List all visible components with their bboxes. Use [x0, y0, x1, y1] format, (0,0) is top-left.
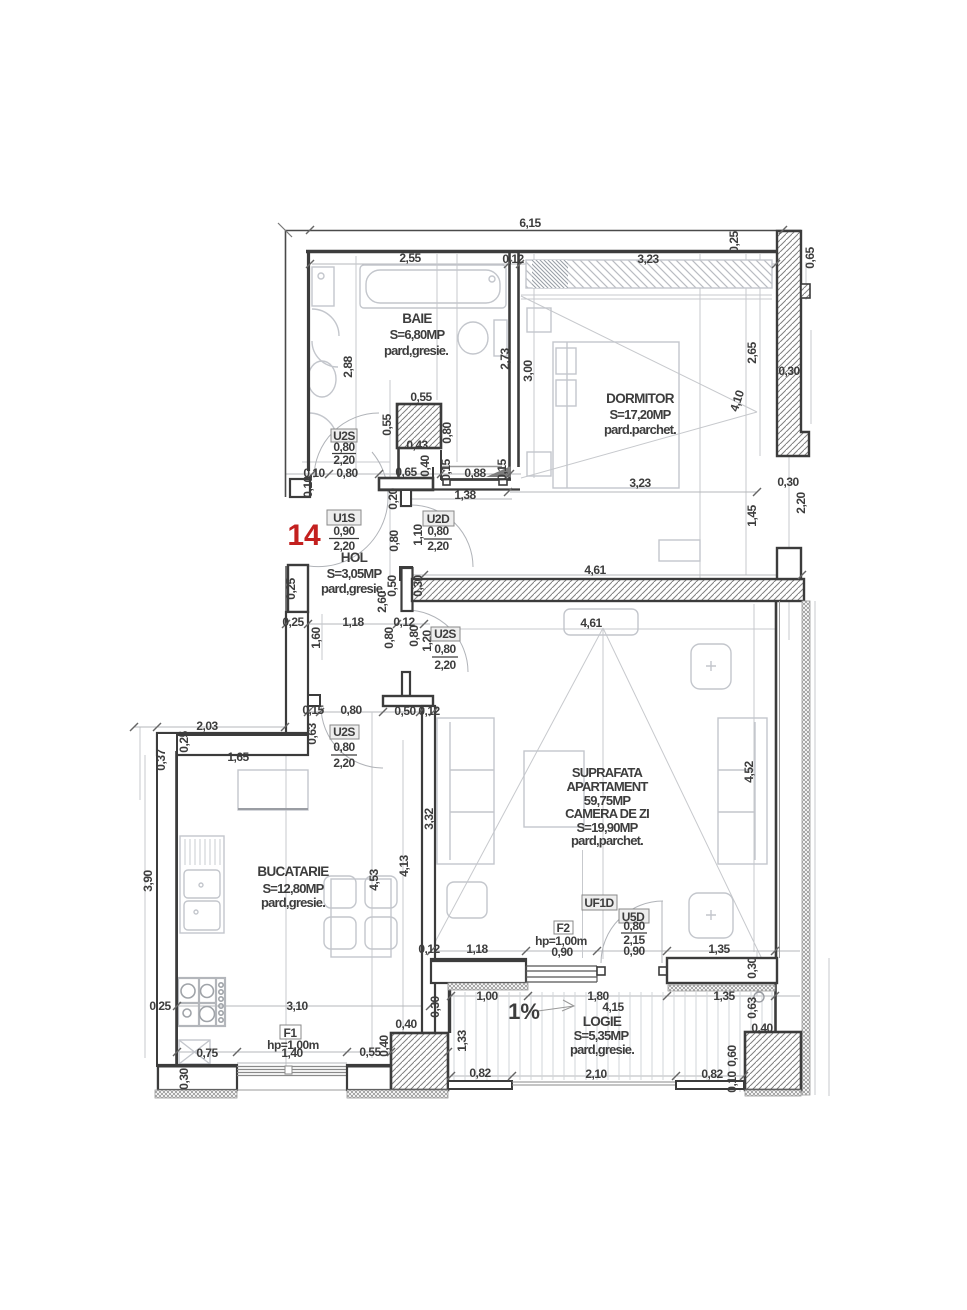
svg-text:0,40: 0,40 — [751, 1021, 773, 1035]
svg-text:0,40: 0,40 — [418, 454, 432, 476]
svg-text:S=3,05MP: S=3,05MP — [327, 566, 383, 581]
svg-text:0,25: 0,25 — [727, 230, 741, 252]
svg-text:0,63: 0,63 — [745, 996, 759, 1018]
svg-text:1,18: 1,18 — [466, 942, 488, 956]
svg-text:APARTAMENT: APARTAMENT — [566, 779, 648, 794]
svg-text:0,40: 0,40 — [377, 1034, 391, 1056]
svg-text:2,10: 2,10 — [585, 1067, 607, 1081]
svg-text:pard,parchet.: pard,parchet. — [571, 833, 643, 848]
svg-text:3,23: 3,23 — [637, 252, 659, 266]
svg-text:0,30: 0,30 — [778, 364, 800, 378]
svg-text:1,35: 1,35 — [708, 942, 730, 956]
svg-text:4,15: 4,15 — [602, 1000, 624, 1014]
svg-text:0,80: 0,80 — [333, 440, 355, 454]
svg-text:0,12: 0,12 — [502, 252, 524, 266]
svg-text:pard.parchet.: pard.parchet. — [604, 422, 676, 437]
svg-text:2,65: 2,65 — [745, 341, 759, 363]
svg-text:2,88: 2,88 — [341, 355, 355, 377]
svg-text:1,45: 1,45 — [745, 504, 759, 526]
svg-text:2,60: 2,60 — [375, 590, 389, 612]
svg-text:0,15: 0,15 — [302, 703, 324, 717]
svg-text:1,10: 1,10 — [411, 523, 425, 545]
svg-text:2,20: 2,20 — [333, 453, 355, 467]
svg-text:U2S: U2S — [333, 725, 355, 739]
svg-text:0,80: 0,80 — [340, 703, 362, 717]
svg-text:0,50: 0,50 — [394, 704, 416, 718]
svg-text:4,52: 4,52 — [742, 760, 756, 782]
svg-text:0,90: 0,90 — [623, 944, 645, 958]
svg-text:2,20: 2,20 — [434, 658, 456, 672]
svg-text:4,10: 4,10 — [727, 388, 747, 413]
svg-text:1,33: 1,33 — [455, 1029, 469, 1051]
svg-text:1,18: 1,18 — [342, 615, 364, 629]
svg-text:pard,gresie.: pard,gresie. — [570, 1042, 634, 1057]
svg-text:4,61: 4,61 — [580, 616, 602, 630]
svg-text:0,15: 0,15 — [495, 458, 509, 480]
svg-text:UF1D: UF1D — [584, 896, 614, 910]
svg-text:0,88: 0,88 — [464, 466, 486, 480]
svg-text:0,80: 0,80 — [387, 529, 401, 551]
svg-text:2,55: 2,55 — [399, 251, 421, 265]
svg-text:3,00: 3,00 — [521, 359, 535, 381]
svg-text:pard,gresie.: pard,gresie. — [384, 343, 448, 358]
svg-text:0,10: 0,10 — [301, 475, 315, 497]
svg-text:2,20: 2,20 — [794, 491, 808, 513]
svg-text:0,65: 0,65 — [803, 246, 817, 268]
svg-text:0,30: 0,30 — [411, 574, 425, 596]
svg-text:0,80: 0,80 — [407, 624, 421, 646]
svg-text:0,82: 0,82 — [469, 1066, 491, 1080]
svg-text:U1S: U1S — [333, 511, 355, 525]
svg-text:2,03: 2,03 — [196, 719, 218, 733]
svg-text:6,15: 6,15 — [519, 216, 541, 230]
svg-text:0,12: 0,12 — [418, 704, 440, 718]
svg-text:S=12,80MP: S=12,80MP — [262, 881, 324, 896]
svg-text:0,30: 0,30 — [428, 995, 442, 1017]
svg-text:0,25: 0,25 — [284, 577, 298, 599]
svg-text:0,80: 0,80 — [623, 919, 645, 933]
svg-text:U2S: U2S — [434, 627, 456, 641]
svg-text:0,25: 0,25 — [282, 615, 304, 629]
svg-text:1,60: 1,60 — [309, 626, 323, 648]
svg-text:BAIE: BAIE — [402, 311, 432, 326]
svg-text:F2: F2 — [556, 921, 570, 935]
svg-text:LOGIE: LOGIE — [583, 1014, 622, 1029]
svg-text:0,80: 0,80 — [440, 421, 454, 443]
svg-text:0,63: 0,63 — [305, 722, 319, 744]
svg-text:4,53: 4,53 — [367, 868, 381, 890]
svg-text:0,43: 0,43 — [406, 438, 428, 452]
svg-text:1%: 1% — [508, 999, 540, 1024]
svg-text:1,40: 1,40 — [281, 1046, 303, 1060]
svg-text:4,13: 4,13 — [397, 854, 411, 876]
svg-text:CAMERA DE ZI: CAMERA DE ZI — [565, 806, 649, 821]
svg-text:0,37: 0,37 — [154, 748, 168, 770]
svg-text:0,25: 0,25 — [177, 730, 191, 752]
svg-text:0,10: 0,10 — [725, 1070, 739, 1092]
svg-text:0,40: 0,40 — [395, 1017, 417, 1031]
svg-text:S=17,20MP: S=17,20MP — [609, 407, 671, 422]
svg-text:0,75: 0,75 — [196, 1046, 218, 1060]
svg-text:SUPRAFATA: SUPRAFATA — [572, 765, 644, 780]
svg-text:3,10: 3,10 — [286, 999, 308, 1013]
svg-text:0,90: 0,90 — [551, 945, 573, 959]
svg-text:BUCATARIE: BUCATARIE — [257, 864, 329, 879]
svg-text:0,20: 0,20 — [386, 487, 400, 509]
svg-text:1,65: 1,65 — [227, 750, 249, 764]
svg-text:1,35: 1,35 — [713, 989, 735, 1003]
svg-text:0,80: 0,80 — [434, 642, 456, 656]
svg-text:0,65: 0,65 — [395, 465, 417, 479]
svg-text:2,73: 2,73 — [498, 347, 512, 369]
svg-text:0,12: 0,12 — [418, 942, 440, 956]
svg-text:0,80: 0,80 — [427, 524, 449, 538]
svg-text:DORMITOR: DORMITOR — [606, 391, 675, 406]
svg-text:0,30: 0,30 — [745, 956, 759, 978]
svg-text:S=6,80MP: S=6,80MP — [390, 327, 446, 342]
svg-text:0,30: 0,30 — [177, 1067, 191, 1089]
svg-text:2,20: 2,20 — [427, 539, 449, 553]
svg-text:0,60: 0,60 — [725, 1044, 739, 1066]
svg-text:0,80: 0,80 — [382, 626, 396, 648]
svg-text:1,38: 1,38 — [454, 488, 476, 502]
svg-text:0,30: 0,30 — [777, 475, 799, 489]
svg-text:2,20: 2,20 — [333, 756, 355, 770]
svg-text:HOL: HOL — [341, 550, 368, 565]
svg-text:0,25: 0,25 — [149, 999, 171, 1013]
svg-text:pard,gresie.: pard,gresie. — [261, 895, 325, 910]
svg-text:3,90: 3,90 — [141, 869, 155, 891]
svg-text:0,55: 0,55 — [380, 413, 394, 435]
svg-text:0,55: 0,55 — [410, 390, 432, 404]
svg-text:14: 14 — [287, 519, 321, 552]
svg-text:0,15: 0,15 — [439, 458, 453, 480]
svg-text:0,80: 0,80 — [333, 740, 355, 754]
svg-text:1,00: 1,00 — [476, 989, 498, 1003]
svg-text:4,61: 4,61 — [584, 563, 606, 577]
svg-text:0,80: 0,80 — [336, 466, 358, 480]
svg-text:0,90: 0,90 — [333, 524, 355, 538]
svg-text:0,82: 0,82 — [701, 1067, 723, 1081]
svg-text:3,23: 3,23 — [629, 476, 651, 490]
svg-text:S=5,35MP: S=5,35MP — [574, 1028, 630, 1043]
svg-text:3,32: 3,32 — [422, 807, 436, 829]
